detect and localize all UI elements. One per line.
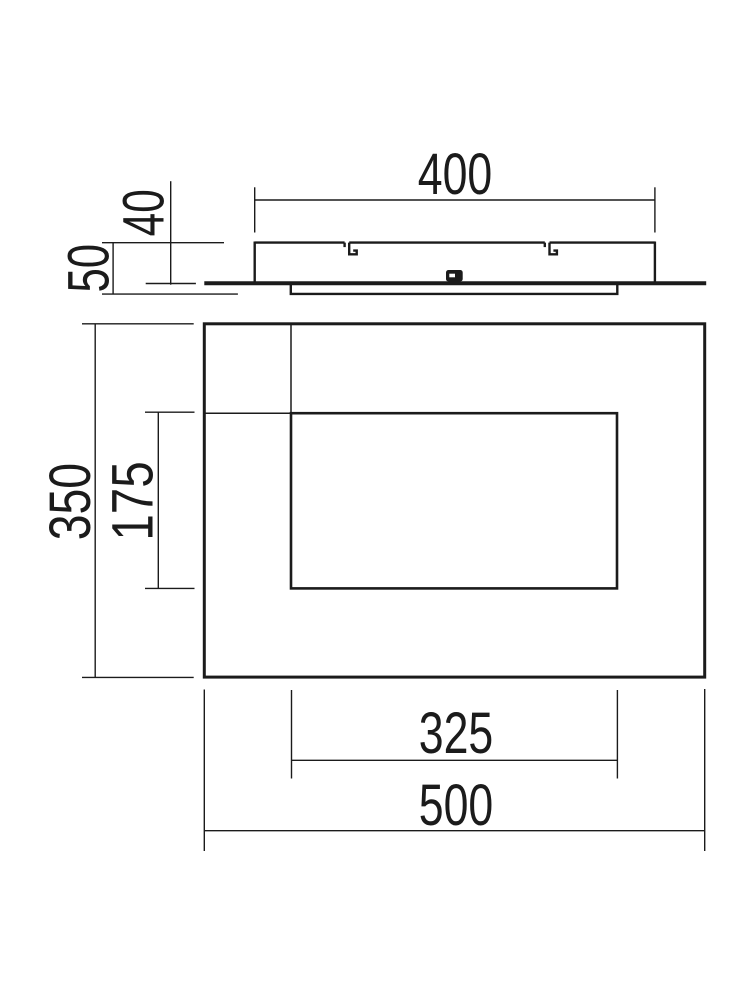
svg-text:350: 350 bbox=[38, 463, 103, 540]
svg-text:500: 500 bbox=[419, 772, 493, 837]
svg-text:175: 175 bbox=[101, 461, 166, 540]
svg-text:40: 40 bbox=[111, 189, 176, 236]
svg-text:400: 400 bbox=[418, 141, 492, 206]
svg-text:50: 50 bbox=[55, 244, 120, 293]
svg-text:325: 325 bbox=[419, 700, 493, 765]
